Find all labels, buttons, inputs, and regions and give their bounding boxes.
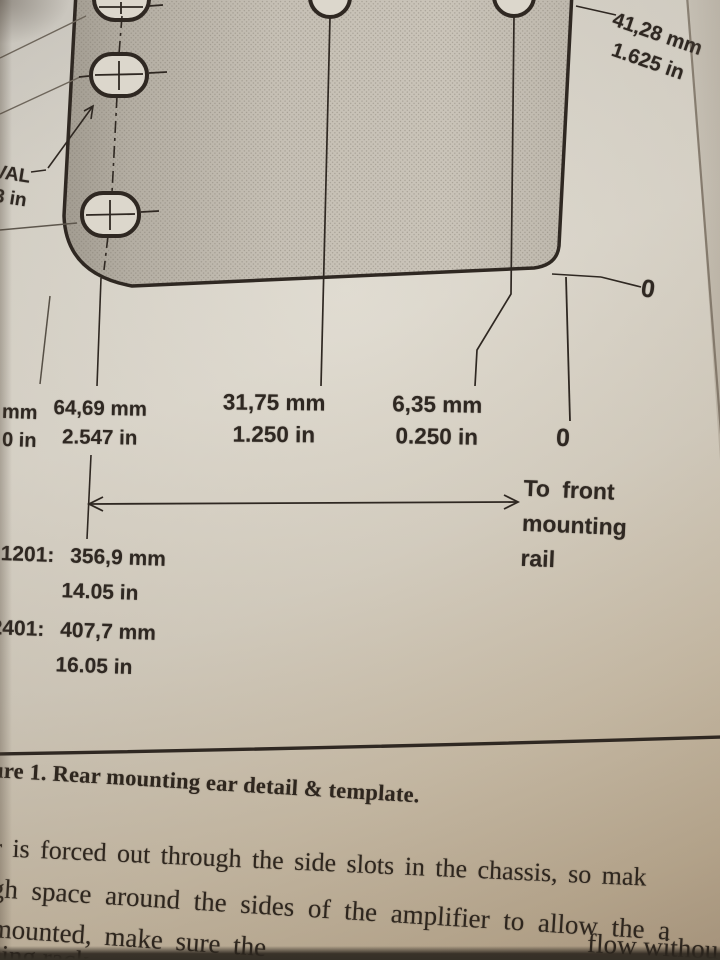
dim-6-35-mm: 6,35 mm — [380, 388, 495, 422]
to-front-line3: rail — [520, 541, 671, 582]
dim-31-75: 31,75 mm 1.250 in — [212, 386, 337, 451]
model-1201-dimension: 1201: 356,9 mm 14.05 in — [0, 537, 166, 612]
dim-left-cutoff-mm: 20 mm — [0, 397, 38, 428]
model-2401-in: 16.05 in — [55, 648, 155, 686]
template-outline — [64, 0, 572, 286]
manual-page-photo: OVAL 53 in 41,28 mm 1.625 in 0 20 mm 0 i… — [0, 0, 720, 960]
extension-line-left-dim — [40, 296, 50, 384]
model-2401-dimension: 2401: 407,7 mm 16.05 in — [0, 611, 156, 686]
zero-leader-line — [601, 277, 641, 287]
model-2401-mm: 407,7 mm — [60, 619, 156, 645]
dim-left-cutoff-in: 0 in — [0, 425, 37, 456]
datum-tick — [552, 274, 601, 277]
dim-31-75-in: 1.250 in — [212, 418, 336, 451]
dim-64-69: 64,69 mm 2.547 in — [49, 393, 150, 453]
model-1201-in: 14.05 in — [61, 574, 165, 612]
dimension-arrow-line — [90, 502, 517, 504]
centerline-extension-middle — [0, 77, 80, 114]
extension-line-6469 — [97, 278, 101, 386]
extension-line-model-dim — [87, 455, 91, 539]
extension-line-zero — [566, 277, 570, 421]
zero-label-bottom: 0 — [555, 421, 571, 457]
model-1201-label: 1201: — [0, 542, 54, 567]
oval-label-dash — [31, 170, 46, 172]
dim-left-cutoff: 20 mm 0 in — [0, 397, 38, 456]
model-2401-label: 2401: — [0, 616, 45, 641]
to-front-mounting-rail-label: To front mounting rail — [520, 471, 674, 582]
dim-64-69-mm: 64,69 mm — [50, 393, 150, 424]
dim-31-75-mm: 31,75 mm — [212, 386, 336, 419]
dim-6-35-in: 0.250 in — [379, 420, 494, 454]
dim-64-69-in: 2.547 in — [49, 422, 149, 453]
section-rule — [0, 737, 720, 754]
dim-6-35: 6,35 mm 0.250 in — [379, 388, 494, 454]
model-1201-mm: 356,9 mm — [70, 545, 166, 571]
